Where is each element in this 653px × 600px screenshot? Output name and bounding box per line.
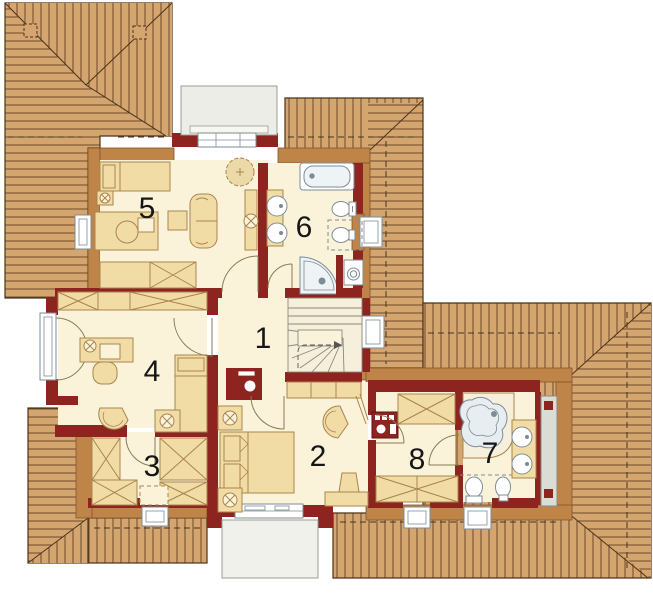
entrance-dormer [181,86,277,135]
nightstand-lamp [218,488,242,512]
wardrobe-room4 [58,292,207,310]
roof-window-bottom-1 [404,507,430,528]
floor-hatch-outline [140,486,168,505]
chimney-block [226,368,262,400]
desk-chair [93,362,117,384]
bed-room5 [100,162,170,191]
stairs [288,298,362,372]
shower-partition [336,255,343,295]
stool-room2 [339,473,359,492]
glazed-wall [541,396,557,506]
chimney-outline [24,24,37,37]
desk-room2 [325,492,368,506]
double-bed [220,432,294,493]
room-label-8: 8 [409,443,426,476]
bathtub [300,163,354,190]
floor-plan-drawing: 1 2 3 4 5 6 7 8 [0,0,653,600]
room-label-1: 1 [255,322,272,355]
washing-machine [344,260,363,285]
chimney-outline [133,26,146,39]
hall5-top-window [198,133,256,147]
floor-plan-canvas: 1 2 3 4 5 6 7 8 [0,0,653,600]
washbasin [267,223,287,243]
sofa-room5 [190,194,217,248]
room-label-3: 3 [144,450,161,483]
room5-side-window [75,215,91,249]
roof-window-bottom-left [142,507,168,526]
stair-window [362,316,384,348]
toilet [466,477,483,503]
nightstand-lamp [155,410,180,432]
toilet [332,202,356,217]
hall-sideboard [287,382,361,398]
desk-chair [116,221,138,243]
shelf-lamp-room5 [244,190,258,250]
roof-window-bottom-2 [464,507,491,529]
room-label-7: 7 [482,437,499,470]
room-label-6: 6 [296,211,313,244]
roof-window-bath6 [352,214,382,250]
room-label-2: 2 [310,440,327,473]
nightstand-lamp [218,406,242,430]
wardrobe-room5 [100,262,196,288]
nightstand-lamp [97,191,113,205]
wardrobe-room8-bottom [376,476,458,502]
wardrobe-room8-top [398,394,455,424]
room-label-5: 5 [139,192,156,225]
side-table-room5 [168,211,187,230]
room-label-4: 4 [144,355,161,388]
washbasin [267,196,287,216]
plant-room5 [226,158,254,186]
